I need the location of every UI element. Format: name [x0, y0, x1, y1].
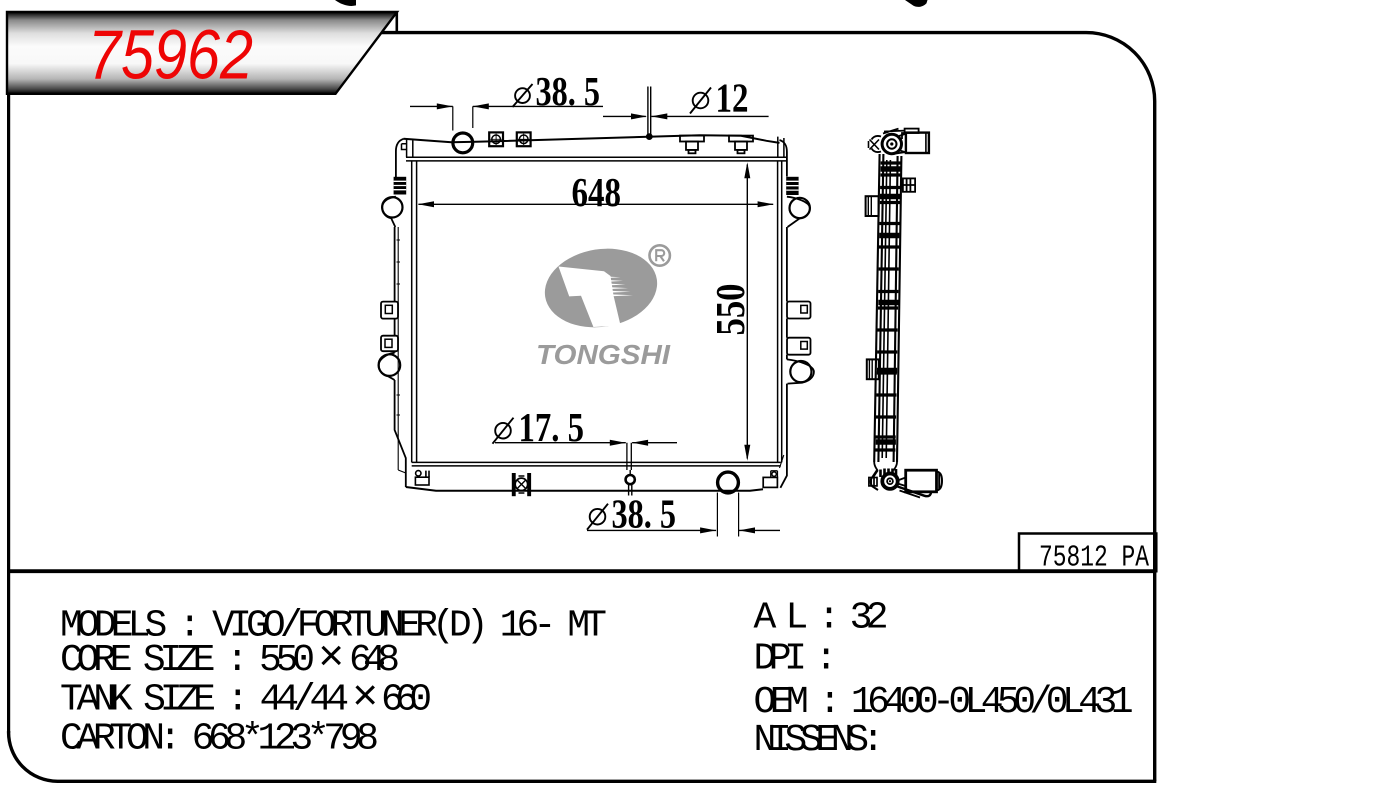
svg-text:75962: 75962 [88, 16, 253, 94]
svg-text:75812 PA: 75812 PA [1039, 541, 1149, 576]
svg-text:38. 5: 38. 5 [612, 490, 677, 536]
svg-text:×: × [352, 674, 378, 724]
svg-text:NISSENS:: NISSENS: [754, 719, 885, 762]
svg-text:DPI :: DPI : [754, 638, 838, 681]
svg-text:TONGSHI: TONGSHI [536, 339, 671, 370]
svg-text:A L : 32: A L : 32 [754, 597, 889, 640]
svg-text:×: × [318, 634, 344, 684]
svg-text:648: 648 [572, 169, 622, 215]
svg-text:CORE SIZE : 550: CORE SIZE : 550 [60, 639, 315, 682]
svg-text:12: 12 [716, 75, 749, 121]
svg-text:17. 5: 17. 5 [519, 404, 585, 450]
svg-text:550: 550 [707, 284, 753, 336]
svg-text:CARTON: 668*123*798: CARTON: 668*123*798 [60, 718, 379, 761]
svg-text:660: 660 [381, 679, 432, 722]
svg-text:38. 5: 38. 5 [536, 68, 601, 114]
svg-text:OEM : 16400-0L450/0L431: OEM : 16400-0L450/0L431 [754, 681, 1134, 724]
svg-text:TANK SIZE : 44/44: TANK SIZE : 44/44 [60, 679, 349, 722]
